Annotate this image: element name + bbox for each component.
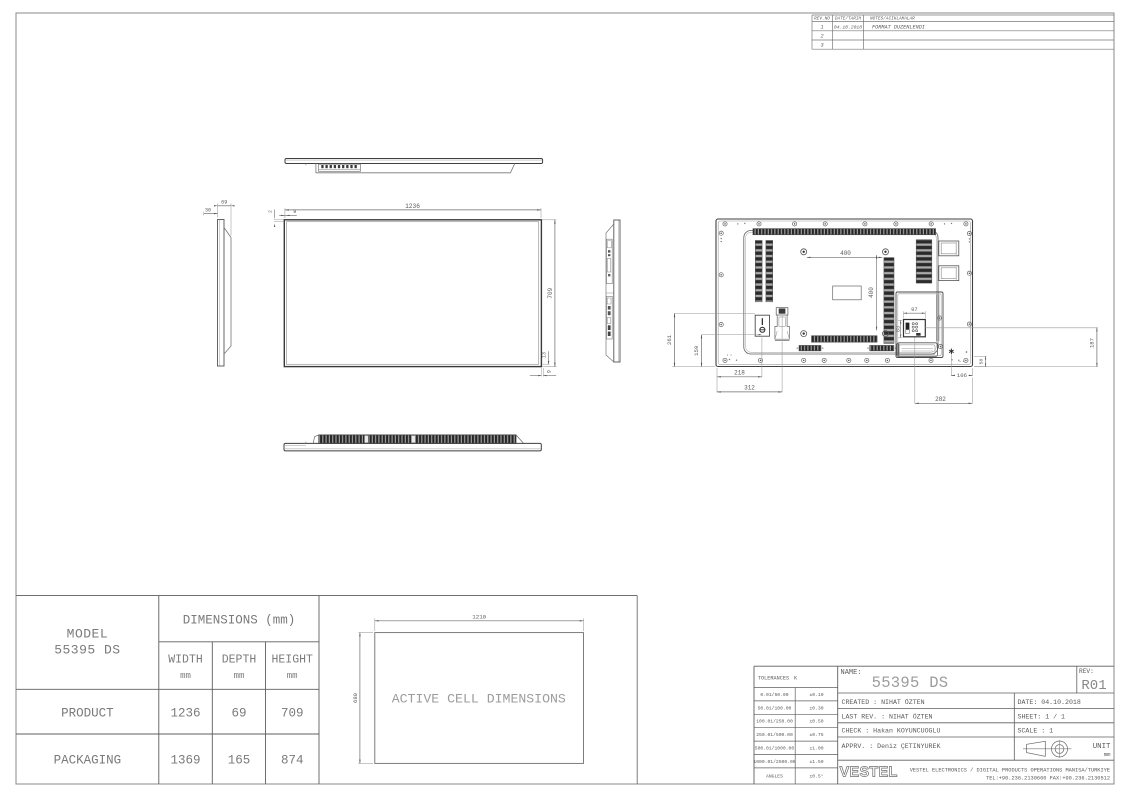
svg-text:69: 69 <box>231 707 246 721</box>
svg-text:2: 2 <box>267 210 273 213</box>
svg-text:DEPTH: DEPTH <box>222 654 257 667</box>
svg-text:97: 97 <box>911 307 917 313</box>
svg-text:250.01/500.00: 250.01/500.00 <box>756 732 793 738</box>
svg-text:±1.50: ±1.50 <box>809 759 823 765</box>
svg-text:LAST REV. : NIHAT ÖZTEN: LAST REV. : NIHAT ÖZTEN <box>842 712 933 720</box>
svg-text:FORMAT DUZENLENDI: FORMAT DUZENLENDI <box>872 24 925 30</box>
svg-text:13: 13 <box>541 352 547 358</box>
svg-text:DIMENSIONS (mm): DIMENSIONS (mm) <box>183 614 296 628</box>
svg-text:HEIGHT: HEIGHT <box>271 654 313 667</box>
svg-text:NOTES/ACIKLAMALAR: NOTES/ACIKLAMALAR <box>870 16 915 21</box>
svg-text:TOLERANCES: TOLERANCES <box>758 676 789 682</box>
svg-text:83: 83 <box>896 326 902 332</box>
svg-text:04.10.2018: 04.10.2018 <box>834 24 862 30</box>
svg-text:mm: mm <box>287 671 298 681</box>
svg-text:UNIT: UNIT <box>1093 743 1111 751</box>
svg-text:mm: mm <box>234 671 245 681</box>
svg-text:9: 9 <box>293 209 296 215</box>
svg-text:0.01/50.00: 0.01/50.00 <box>760 692 788 698</box>
svg-text:APPRV. : Deniz ÇETINYUREK: APPRV. : Deniz ÇETINYUREK <box>842 743 941 750</box>
svg-text:282: 282 <box>935 396 946 403</box>
svg-text:400: 400 <box>868 287 875 298</box>
svg-text:PRODUCT: PRODUCT <box>61 707 114 721</box>
svg-text:K: K <box>794 676 798 682</box>
svg-text:55395 DS: 55395 DS <box>54 643 120 658</box>
svg-text:VESTEL ELECTRONICS / DIGITAL P: VESTEL ELECTRONICS / DIGITAL PRODUCTS OP… <box>910 767 1110 773</box>
svg-text:PACKAGING: PACKAGING <box>54 754 122 768</box>
svg-text:mm: mm <box>180 671 191 681</box>
svg-text:500.01/1000.00: 500.01/1000.00 <box>755 746 795 752</box>
svg-text:VESTEL: VESTEL <box>840 765 898 781</box>
svg-text:ACTIVE CELL DIMENSIONS: ACTIVE CELL DIMENSIONS <box>392 692 566 707</box>
svg-text:DATE: 04.10.2018: DATE: 04.10.2018 <box>1018 699 1081 706</box>
svg-text:mm: mm <box>1104 751 1111 758</box>
svg-text:WIDTH: WIDTH <box>168 654 203 667</box>
svg-text:TEL:+90.236.2130660 FAX:+90.23: TEL:+90.236.2130660 FAX:+90.236.2130512 <box>986 775 1110 781</box>
svg-text:2: 2 <box>820 34 823 40</box>
svg-text:REV.NO: REV.NO <box>814 16 830 21</box>
svg-text:1: 1 <box>820 24 823 30</box>
svg-text:3: 3 <box>820 43 823 49</box>
svg-text:100.01/250.00: 100.01/250.00 <box>756 719 793 725</box>
svg-text:50.01/100.00: 50.01/100.00 <box>758 705 792 711</box>
svg-text:SCALE : 1: SCALE : 1 <box>1018 727 1054 734</box>
svg-text:NAME:: NAME: <box>841 669 862 677</box>
svg-text:187: 187 <box>1089 338 1096 348</box>
svg-text:55395 DS: 55395 DS <box>872 674 949 692</box>
svg-text:1210: 1210 <box>472 614 486 621</box>
svg-text:69: 69 <box>221 199 227 205</box>
svg-text:CREATED : NIHAT ÖZTEN: CREATED : NIHAT ÖZTEN <box>842 698 925 706</box>
svg-text:1000.01/2500.00: 1000.01/2500.00 <box>753 759 795 765</box>
svg-text:874: 874 <box>281 754 304 768</box>
svg-text:50: 50 <box>979 359 985 365</box>
svg-text:30: 30 <box>205 207 211 213</box>
svg-text:±0.50: ±0.50 <box>809 719 823 725</box>
svg-text:±1.00: ±1.00 <box>809 746 823 752</box>
svg-text:ANGLES: ANGLES <box>766 774 783 780</box>
svg-text:261: 261 <box>666 334 673 345</box>
svg-text:106: 106 <box>957 372 967 379</box>
svg-text:680: 680 <box>352 692 359 703</box>
svg-text:312: 312 <box>744 385 755 392</box>
svg-text:±0.5°: ±0.5° <box>809 774 823 780</box>
svg-text:159: 159 <box>693 346 700 356</box>
svg-text:709: 709 <box>547 287 554 298</box>
svg-text:218: 218 <box>734 369 745 376</box>
svg-text:±0.30: ±0.30 <box>809 705 823 711</box>
svg-text:1369: 1369 <box>170 754 200 768</box>
svg-text:±0.10: ±0.10 <box>809 692 823 698</box>
svg-text:REV:: REV: <box>1079 668 1094 675</box>
svg-text:CHECK : Hakan KOYUNCUOGLU: CHECK : Hakan KOYUNCUOGLU <box>842 727 941 734</box>
svg-text:9: 9 <box>547 370 553 373</box>
svg-text:709: 709 <box>281 707 304 721</box>
svg-text:1236: 1236 <box>405 203 420 210</box>
svg-text:SHEET: 1 / 1: SHEET: 1 / 1 <box>1018 713 1066 720</box>
svg-text:165: 165 <box>228 754 251 768</box>
svg-text:MODEL: MODEL <box>67 627 109 642</box>
svg-text:DATE/TARIH: DATE/TARIH <box>835 16 862 21</box>
svg-text:R01: R01 <box>1081 678 1106 694</box>
svg-text:±0.75: ±0.75 <box>809 732 823 738</box>
svg-text:400: 400 <box>840 250 851 257</box>
svg-text:1236: 1236 <box>170 707 200 721</box>
